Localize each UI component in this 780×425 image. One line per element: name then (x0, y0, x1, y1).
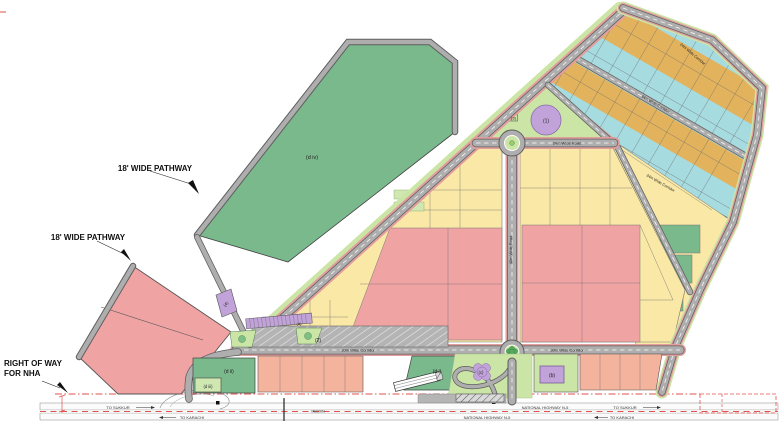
culvert-dot-left (216, 401, 220, 405)
label-highway-name-upper: NATIONAL HIGHWAY N-5 (522, 405, 570, 410)
tree-icon (305, 333, 312, 340)
label-parcel-2: (2) (315, 338, 321, 344)
highway-lower-carriageway (40, 413, 778, 420)
row-annotation-line1: RIGHT OF WAY (4, 359, 63, 368)
label-parcel-d-iv: (d iv) (306, 155, 318, 161)
parking-area-2 (252, 326, 448, 347)
label-24m-wide-road: 24m Wide Road (553, 141, 582, 146)
master-plan-canvas: 18' WIDE PATHWAY 18' WIDE PATHWAY RIGHT … (0, 0, 780, 425)
label-30m-corridor-left: 30m Wide Corridor (341, 348, 375, 353)
grid-right-pink-core (522, 225, 640, 342)
label-40m-wide-road: 40m Wide Road (508, 236, 513, 265)
label-parcel-1: (1) (543, 119, 549, 125)
label-highway-name-lower: NATIONAL HIGHWAY N-5 (464, 415, 512, 420)
tree-icon (239, 336, 246, 343)
label-parcel-d-ii: (d ii) (224, 369, 234, 375)
pathway-annotation-1: 18' WIDE PATHWAY (118, 164, 193, 173)
label-30m-corridor-right: 30m Wide Corridor (550, 348, 584, 353)
label-median: MEDIAN (311, 410, 325, 414)
label-to-karachi-right: TO KARACHI (610, 415, 634, 420)
arrowhead (188, 180, 199, 194)
label-parcel-d-i: (d i) (433, 369, 442, 375)
row-annotation-line2: FOR NHA (4, 369, 41, 378)
label-parcel-c: (c) (479, 370, 484, 375)
label-to-karachi-left: TO KARACHI (180, 415, 204, 420)
tree-icon (510, 141, 515, 146)
label-parcel-d-iii: (d iii) (203, 384, 213, 389)
salmon-lot-row-west (258, 356, 363, 392)
pathway-annotation-2: 18' WIDE PATHWAY (51, 233, 126, 242)
salmon-lot-row-east (580, 354, 662, 390)
site-plan: 18' WIDE PATHWAY 18' WIDE PATHWAY RIGHT … (0, 0, 780, 425)
roundabout-north (499, 130, 525, 156)
label-parcel-a: (a) (297, 321, 303, 326)
hatched-island (456, 394, 504, 402)
label-to-sukkur-right: TO SUKKUR (613, 405, 636, 410)
highway-upper-carriageway (40, 403, 778, 410)
label-to-sukkur-left: TO SUKKUR (106, 405, 129, 410)
label-parcel-3: (3) (511, 116, 517, 121)
label-parcel-b: (b) (549, 373, 555, 379)
bottom-strip-group (193, 354, 662, 403)
arrowhead (121, 249, 131, 261)
